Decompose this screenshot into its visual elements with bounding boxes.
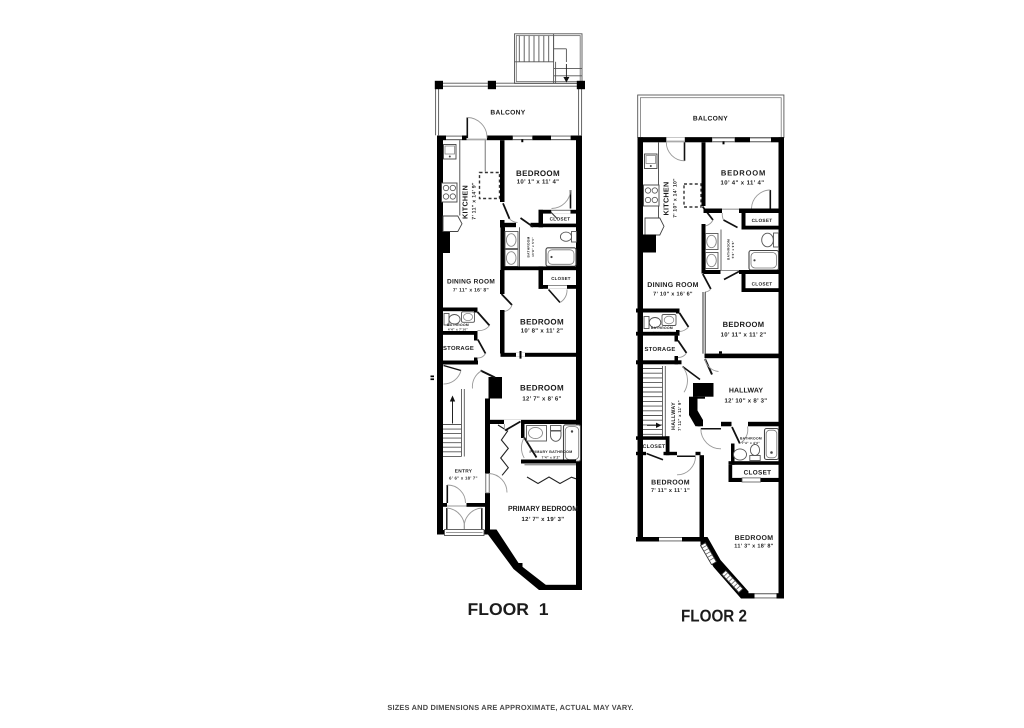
svg-text:BATHROOM: BATHROOM — [651, 326, 673, 330]
svg-text:7’ 11" x 16’ 8": 7’ 11" x 16’ 8" — [453, 288, 490, 294]
svg-text:KITCHEN: KITCHEN — [461, 185, 470, 219]
svg-text:CLOSET: CLOSET — [643, 444, 666, 450]
svg-text:HALLWAY: HALLWAY — [729, 388, 764, 395]
svg-text:7’ 10" x 16’ 6": 7’ 10" x 16’ 6" — [653, 292, 693, 298]
svg-text:PRIMARY BATHROOM: PRIMARY BATHROOM — [529, 450, 572, 454]
svg-text:PRIMARY BEDROOM: PRIMARY BEDROOM — [508, 504, 578, 513]
svg-text:7’4" x 4’6": 7’4" x 4’6" — [742, 441, 761, 445]
svg-text:6’ 6" x 18’ 7": 6’ 6" x 18’ 7" — [449, 476, 478, 481]
svg-text:BEDROOM: BEDROOM — [721, 169, 766, 178]
svg-text:CLOSET: CLOSET — [752, 218, 773, 223]
svg-text:BEDROOM: BEDROOM — [520, 384, 564, 393]
svg-text:10’ 8" x 11’ 2": 10’ 8" x 11’ 2" — [521, 328, 564, 335]
svg-text:BEDROOM: BEDROOM — [520, 318, 564, 327]
svg-text:BATHROOM: BATHROOM — [527, 236, 531, 257]
svg-text:7’ 11" x 14’ 9": 7’ 11" x 14’ 9" — [472, 182, 478, 220]
svg-text:12’ 7" x 19’ 3": 12’ 7" x 19’ 3" — [522, 516, 565, 523]
svg-text:DINING ROOM: DINING ROOM — [647, 282, 699, 289]
svg-text:11’ 3" x 18’ 8": 11’ 3" x 18’ 8" — [734, 544, 773, 550]
svg-text:BATHROOM: BATHROOM — [447, 323, 469, 327]
svg-text:STORAGE: STORAGE — [644, 346, 675, 353]
svg-text:10’8" x 5’0": 10’8" x 5’0" — [531, 237, 535, 257]
svg-text:7’ 11" x 11’ 1": 7’ 11" x 11’ 1" — [651, 488, 690, 494]
svg-text:CLOSET: CLOSET — [551, 276, 571, 281]
svg-text:7’ 11" x 11’ 9": 7’ 11" x 11’ 9" — [677, 400, 682, 431]
svg-text:7’ 10" x 14’ 10": 7’ 10" x 14’ 10" — [673, 178, 679, 218]
svg-text:10’ 11" x 11’ 2": 10’ 11" x 11’ 2" — [721, 332, 767, 339]
svg-text:FLOOR 2: FLOOR 2 — [681, 607, 747, 626]
svg-text:4’4" x 7’10": 4’4" x 7’10" — [448, 327, 469, 331]
svg-text:CLOSET: CLOSET — [744, 470, 772, 477]
svg-text:STORAGE: STORAGE — [443, 345, 474, 352]
svg-text:CLOSET: CLOSET — [752, 282, 773, 287]
svg-text:10’ 1" x 11’ 4": 10’ 1" x 11’ 4" — [517, 179, 560, 186]
svg-text:BEDROOM: BEDROOM — [723, 320, 765, 329]
svg-text:DINING ROOM: DINING ROOM — [447, 279, 495, 286]
svg-text:ENTRY: ENTRY — [455, 469, 473, 475]
svg-text:BEDROOM: BEDROOM — [651, 480, 690, 487]
svg-text:BEDROOM: BEDROOM — [735, 535, 774, 542]
svg-text:SIZES AND DIMENSIONS ARE APPRO: SIZES AND DIMENSIONS ARE APPROXIMATE, AC… — [387, 703, 633, 712]
svg-text:BATHROOM: BATHROOM — [740, 437, 762, 441]
svg-text:10’ 4" x 11’ 4": 10’ 4" x 11’ 4" — [720, 180, 764, 187]
svg-text:KITCHEN: KITCHEN — [662, 181, 671, 215]
svg-text:FLOOR 1: FLOOR 1 — [468, 600, 549, 619]
svg-text:CLOSET: CLOSET — [550, 216, 571, 221]
svg-text:BALCONY: BALCONY — [490, 110, 525, 117]
svg-text:5’6" x 9’6": 5’6" x 9’6" — [731, 240, 735, 258]
svg-text:BALCONY: BALCONY — [693, 116, 728, 123]
svg-text:7’4" x 9’2": 7’4" x 9’2" — [542, 456, 561, 460]
svg-text:BEDROOM: BEDROOM — [516, 169, 560, 178]
svg-text:12’ 7" x 8’ 6": 12’ 7" x 8’ 6" — [522, 396, 561, 403]
svg-text:BATHROOM: BATHROOM — [727, 239, 731, 260]
svg-text:12’ 10" x 8’ 3": 12’ 10" x 8’ 3" — [725, 398, 768, 405]
